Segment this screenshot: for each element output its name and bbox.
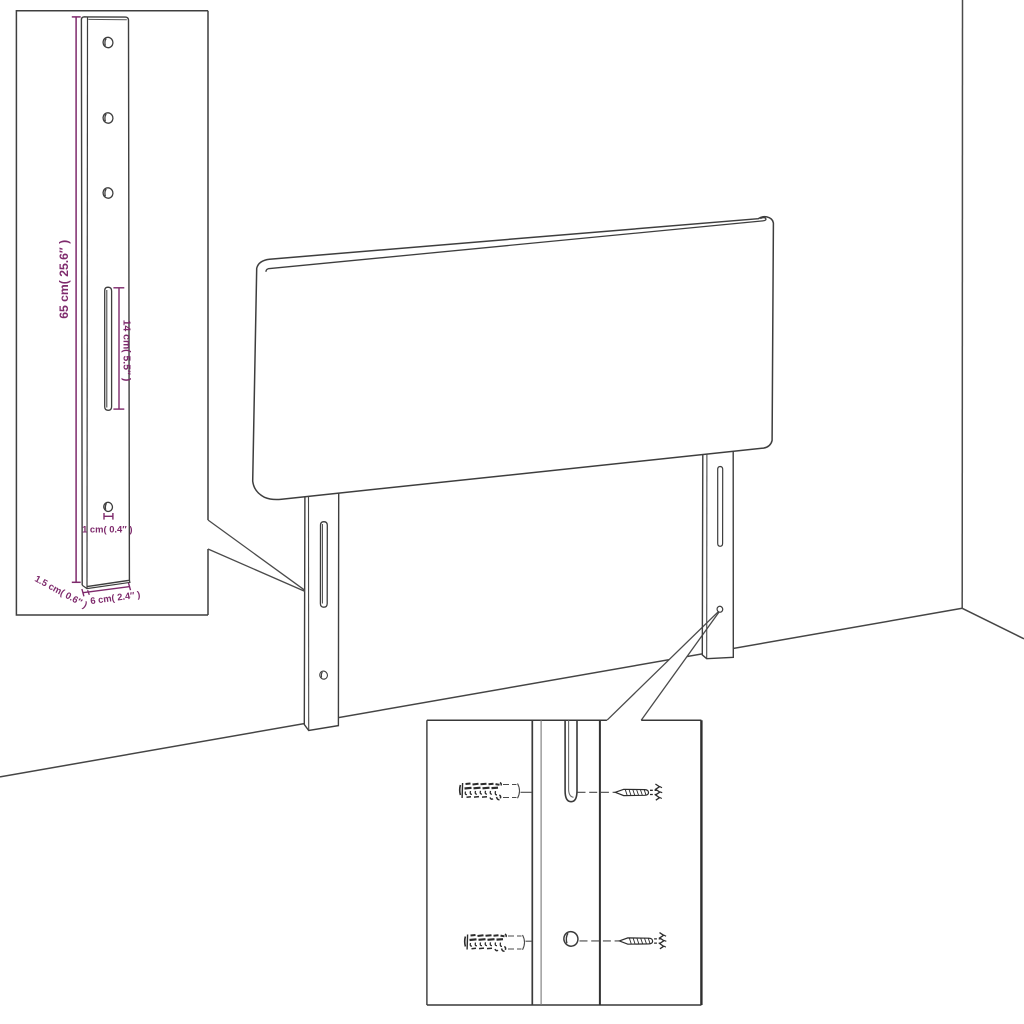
svg-text:14 cm( 5.5″ ): 14 cm( 5.5″ ) [121, 320, 132, 382]
svg-text:1 cm( 0.4″ ): 1 cm( 0.4″ ) [82, 524, 132, 535]
svg-text:65 cm( 25.6″ ): 65 cm( 25.6″ ) [57, 240, 71, 319]
